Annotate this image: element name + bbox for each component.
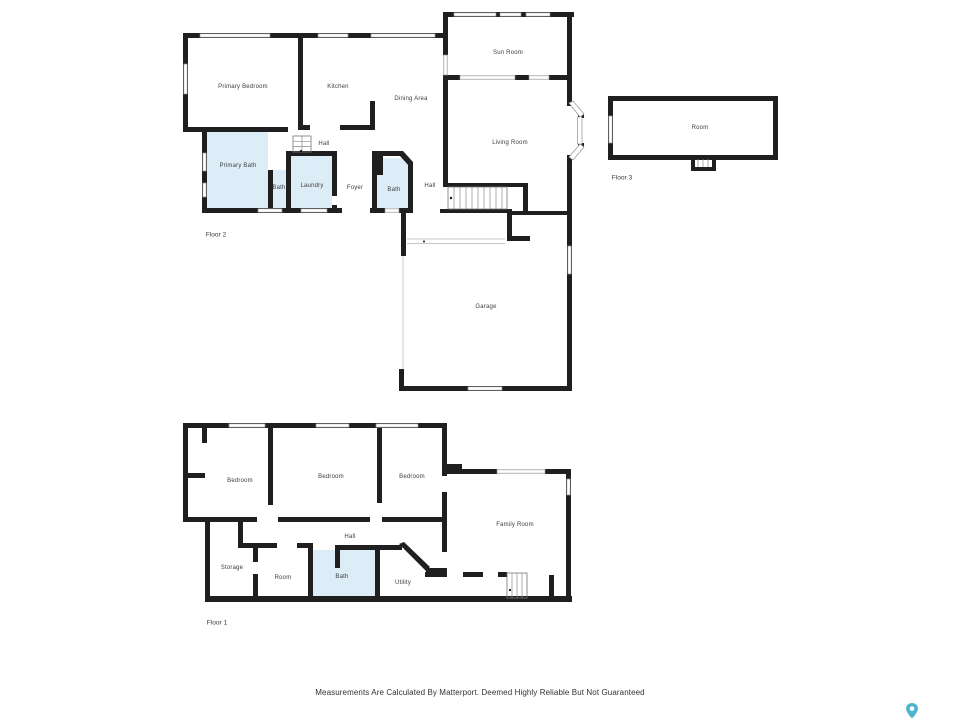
windows	[184, 13, 612, 495]
stairs-floor1-family-room	[507, 573, 527, 598]
floor-3-plan	[608, 96, 778, 171]
bath-fills	[207, 132, 408, 596]
floorplan-drawing	[0, 0, 960, 720]
stairs-floor2-hall	[293, 136, 311, 152]
matterport-pin-icon	[906, 703, 918, 718]
floorplan-page: Primary BedroomKitchenDining AreaSun Roo…	[0, 0, 960, 720]
floor-1-plan	[183, 423, 572, 602]
measurement-disclaimer: Measurements Are Calculated By Matterpor…	[0, 688, 960, 697]
stairs-floor2-main	[448, 187, 507, 209]
